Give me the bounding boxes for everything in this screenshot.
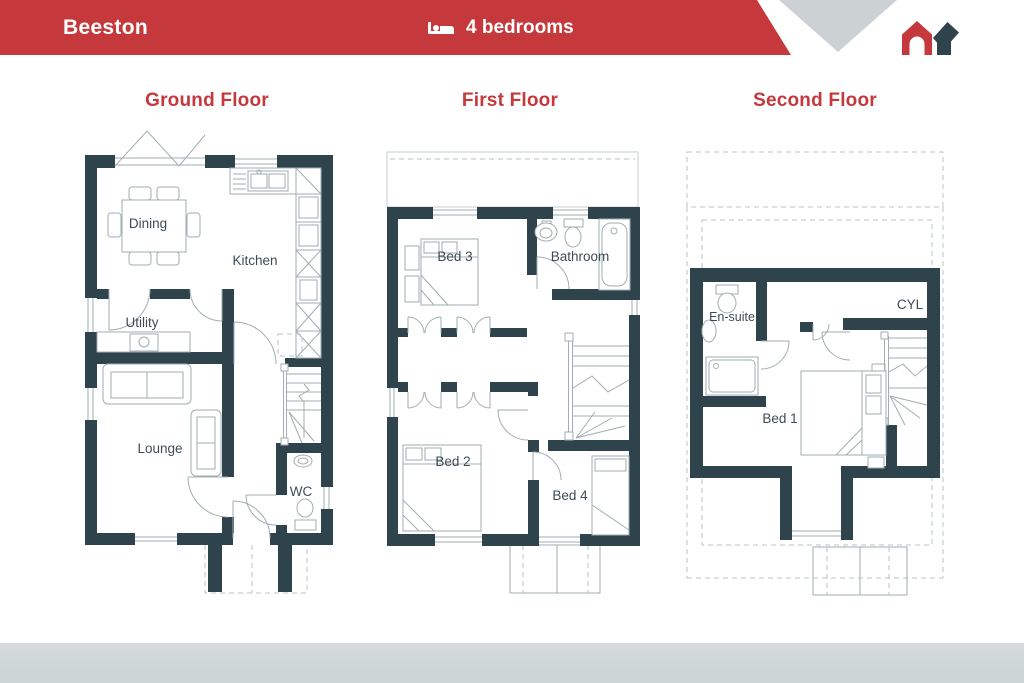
room-label-cyl: CYL (897, 297, 924, 312)
staircase (565, 333, 629, 440)
sofa (103, 364, 221, 476)
bedrooms-label: 4 bedrooms (466, 17, 574, 39)
porch (813, 547, 907, 595)
room-label-utility: Utility (126, 315, 159, 330)
room-label-bed1: Bed 1 (762, 411, 797, 426)
porch (205, 545, 307, 593)
second-floor-plan: En-suite CYL Bed 1 (680, 145, 948, 605)
room-label-kitchen: Kitchen (232, 253, 277, 268)
room-label-bed2: Bed 2 (435, 454, 470, 469)
room-label-bathroom: Bathroom (551, 249, 610, 264)
room-label-ensuite: En-suite (709, 310, 755, 324)
footer-bar (0, 643, 1024, 683)
room-label-bed4: Bed 4 (552, 488, 588, 503)
bedrooms-badge: 4 bedrooms (428, 0, 574, 55)
room-label-wc: WC (290, 484, 313, 499)
chevron-down-icon (779, 0, 897, 52)
porch (510, 545, 600, 593)
room-label-bed3: Bed 3 (437, 249, 472, 264)
first-floor-title: First Floor (380, 90, 640, 112)
room-label-dining: Dining (129, 216, 167, 231)
page-title: Beeston (63, 0, 148, 55)
bifold-door (115, 131, 205, 166)
house-logo (902, 21, 959, 55)
room-label-lounge: Lounge (137, 441, 182, 456)
bed (801, 371, 886, 468)
second-floor-title: Second Floor (685, 90, 945, 112)
ground-floor-plan: Dining Kitchen Utility Lounge WC (78, 120, 350, 606)
ground-floor-title: Ground Floor (77, 90, 337, 112)
staircase (281, 364, 321, 445)
ensuite-suite (702, 285, 758, 395)
floorplan-page: Beeston 4 bedrooms Ground Floor First Fl… (0, 0, 1024, 683)
roof-outline (387, 152, 638, 207)
bed-icon (428, 19, 455, 37)
washing-machine (97, 332, 190, 352)
first-floor-plan: Bed 3 Bathroom Bed 2 Bed 4 (378, 145, 646, 605)
